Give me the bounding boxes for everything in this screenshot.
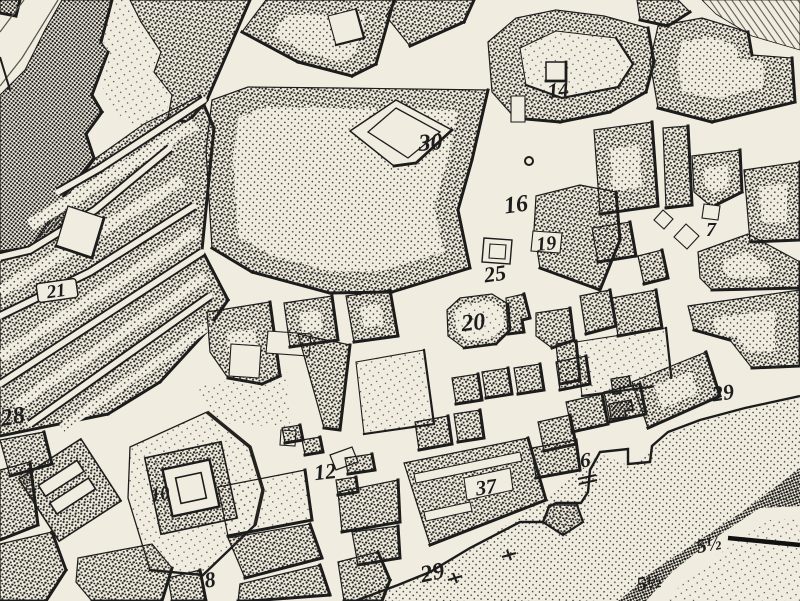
svg-text:12: 12 bbox=[313, 458, 337, 485]
svg-text:7: 7 bbox=[706, 219, 717, 241]
svg-text:25: 25 bbox=[481, 260, 507, 288]
svg-text:30: 30 bbox=[417, 129, 444, 157]
svg-text:14: 14 bbox=[547, 77, 570, 103]
svg-text:10: 10 bbox=[149, 483, 171, 507]
svg-text:16: 16 bbox=[502, 191, 529, 220]
svg-text:29: 29 bbox=[709, 379, 735, 407]
svg-text:5½: 5½ bbox=[695, 532, 723, 558]
svg-text:28: 28 bbox=[0, 402, 27, 432]
svg-text:20: 20 bbox=[459, 309, 487, 337]
svg-text:21: 21 bbox=[44, 280, 67, 304]
svg-text:29: 29 bbox=[417, 558, 447, 589]
svg-text:19: 19 bbox=[535, 232, 557, 256]
svg-text:5½: 5½ bbox=[635, 570, 663, 596]
